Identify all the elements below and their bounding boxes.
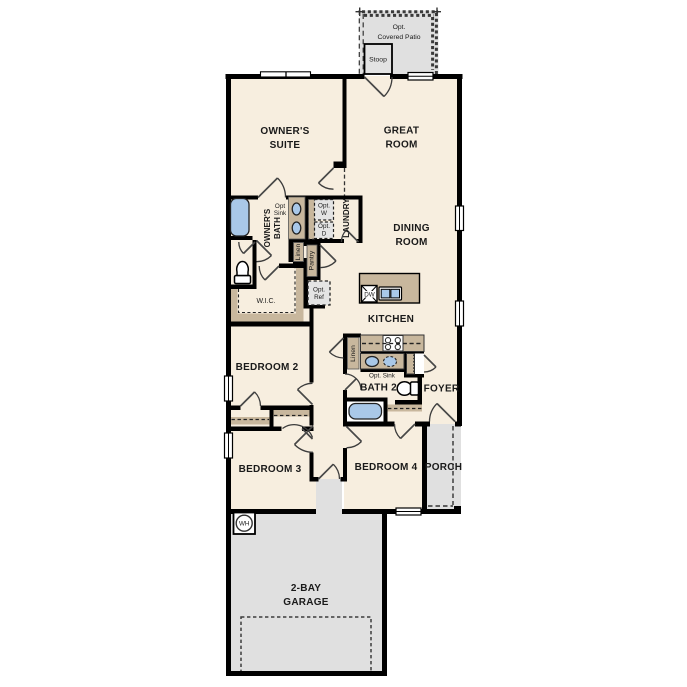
svg-text:Linen: Linen xyxy=(350,345,357,362)
svg-text:Stoop: Stoop xyxy=(369,57,387,64)
svg-text:BATH: BATH xyxy=(273,217,282,239)
svg-text:W.I.C.: W.I.C. xyxy=(256,298,275,305)
svg-text:Linen: Linen xyxy=(295,243,302,260)
svg-text:OWNER'S: OWNER'S xyxy=(260,126,309,137)
svg-text:KITCHEN: KITCHEN xyxy=(368,314,414,325)
svg-text:Opt: Opt xyxy=(275,203,285,210)
svg-text:LAUNDRY: LAUNDRY xyxy=(342,198,351,238)
svg-text:ROOM: ROOM xyxy=(395,237,427,248)
svg-text:Covered Patio: Covered Patio xyxy=(377,34,420,41)
svg-text:BEDROOM 2: BEDROOM 2 xyxy=(236,362,299,373)
svg-text:Opt.: Opt. xyxy=(318,203,330,210)
svg-text:D: D xyxy=(322,231,327,238)
svg-text:FOYER: FOYER xyxy=(424,384,460,395)
svg-text:Opt.: Opt. xyxy=(393,24,406,31)
svg-text:BEDROOM 4: BEDROOM 4 xyxy=(355,462,418,473)
svg-text:W: W xyxy=(321,210,327,217)
svg-text:GREAT: GREAT xyxy=(384,126,420,137)
svg-text:SUITE: SUITE xyxy=(270,140,301,151)
svg-text:Opt.: Opt. xyxy=(318,223,330,230)
svg-text:Sink: Sink xyxy=(274,210,287,217)
svg-text:ROOM: ROOM xyxy=(385,140,417,151)
svg-text:WH: WH xyxy=(239,521,250,528)
svg-text:Opt.: Opt. xyxy=(313,287,325,294)
svg-text:Opt. Sink: Opt. Sink xyxy=(369,373,396,380)
svg-text:2-BAY: 2-BAY xyxy=(291,583,321,594)
svg-text:DINING: DINING xyxy=(393,223,430,234)
svg-text:BEDROOM 3: BEDROOM 3 xyxy=(239,464,302,475)
svg-text:GARAGE: GARAGE xyxy=(283,597,328,608)
svg-text:Pantry: Pantry xyxy=(309,250,316,270)
svg-text:BATH 2: BATH 2 xyxy=(360,383,397,394)
svg-text:PORCH: PORCH xyxy=(425,462,462,473)
svg-text:DW: DW xyxy=(364,292,375,299)
svg-text:Ref: Ref xyxy=(314,294,324,301)
svg-text:OWNER'S: OWNER'S xyxy=(263,208,272,247)
